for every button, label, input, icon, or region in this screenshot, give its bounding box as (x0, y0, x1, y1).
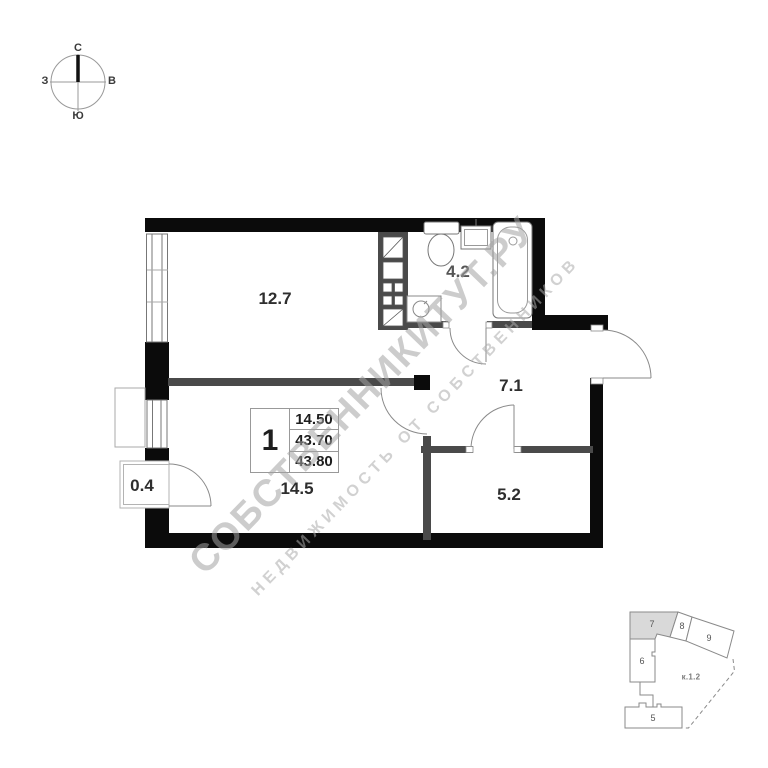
entrance-door-arc (603, 330, 651, 378)
summary-rows: 14.50 43.70 43.80 (289, 409, 338, 472)
summary-row-area: 43.70 (290, 430, 338, 451)
opening-caps (443, 322, 603, 453)
rooms-count: 1 (251, 409, 289, 472)
summary-row-total-area: 43.80 (290, 452, 338, 472)
room-area-label-kitchen: 14.5 (280, 479, 313, 499)
room-area-label-living: 12.7 (258, 289, 291, 309)
kitchen-door-arc (381, 388, 427, 434)
room-area-label-pantry: 5.2 (497, 485, 521, 505)
balcony-door-arc (169, 464, 211, 506)
bathtub-icon (493, 222, 532, 318)
toilet-icon (424, 222, 459, 266)
compass-south-label: Ю (72, 110, 83, 122)
floor-plan-page: С В Ю З 12.7 4.2 7.1 5.2 14.5 0.4 1 14.5… (0, 0, 768, 768)
summary-row-living-area: 14.50 (290, 409, 338, 430)
bathroom-door-arc (450, 328, 486, 364)
window-kitchen (147, 400, 167, 448)
wall-end-cap (414, 375, 430, 390)
washing-machine-icon (407, 296, 441, 322)
apartment-summary-box: 1 14.50 43.70 43.80 (250, 408, 339, 473)
interior-walls (168, 321, 593, 540)
compass-north-label: С (74, 42, 82, 54)
room-area-label-hallway: 7.1 (499, 376, 523, 396)
site-building-label: к.1.2 (682, 673, 701, 682)
floor-plan-drawing (0, 0, 768, 768)
site-boundary-dashed (683, 659, 735, 728)
pantry-door-arc (471, 405, 514, 449)
ventilation-shaft (378, 232, 408, 330)
window-living (147, 234, 169, 342)
exterior-ledge (115, 388, 145, 447)
site-section-5-label: 5 (650, 713, 655, 723)
site-section-6-label: 6 (639, 656, 644, 666)
room-area-label-balcony: 0.4 (130, 476, 154, 496)
compass-east-label: В (108, 75, 116, 87)
site-section-7-label: 7 (649, 619, 654, 629)
compass-west-label: З (42, 75, 49, 87)
compass-icon (50, 54, 106, 111)
site-section-9-label: 9 (706, 633, 711, 643)
site-section-8-label: 8 (679, 621, 684, 631)
room-area-label-bathroom: 4.2 (446, 262, 470, 282)
door-arcs (169, 328, 651, 506)
